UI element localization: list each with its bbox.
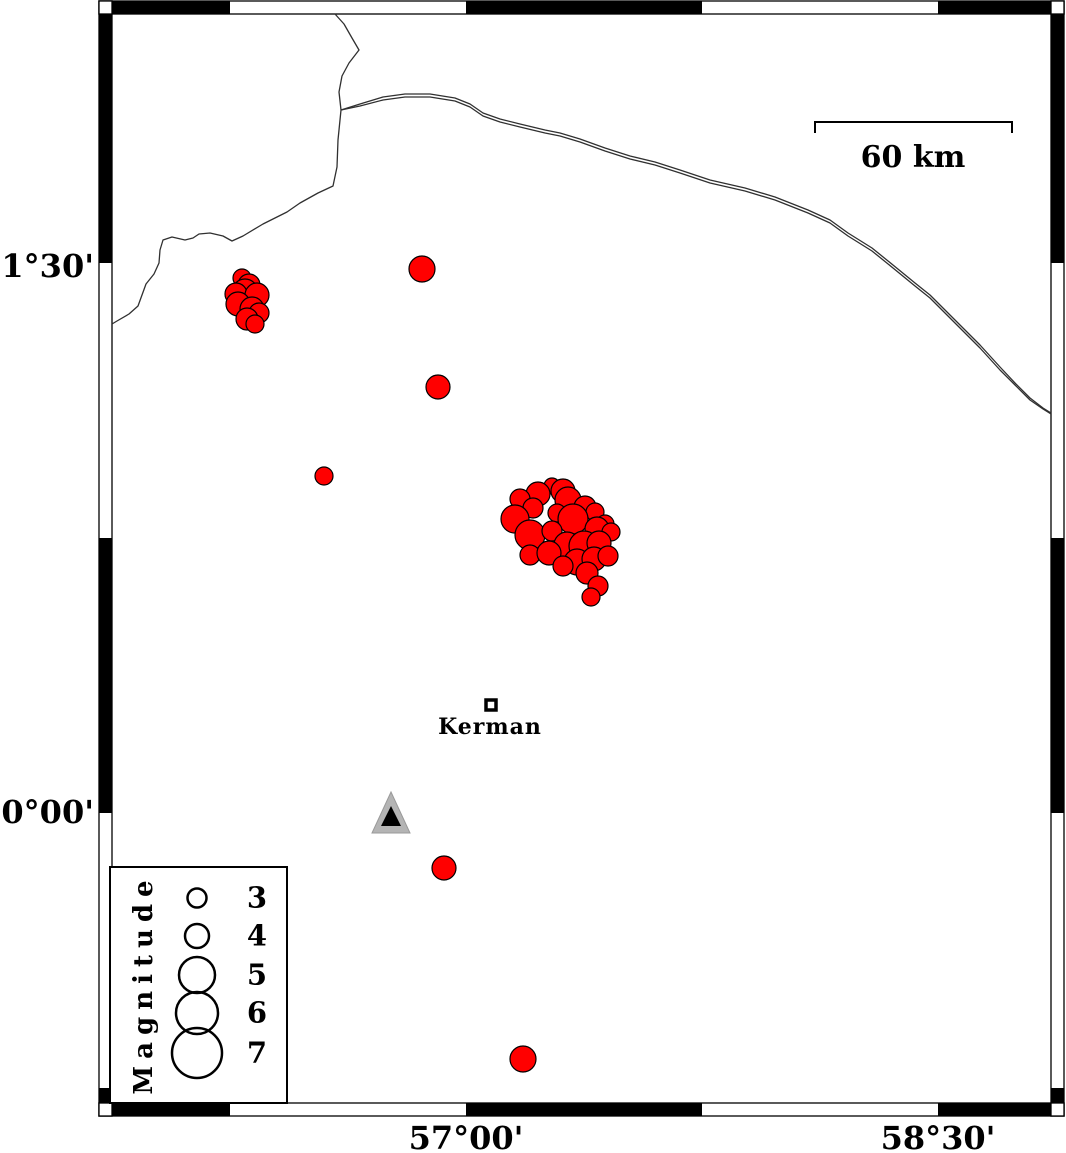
legend-value-7: 7 — [247, 1035, 267, 1069]
legend-value-4: 4 — [247, 918, 267, 952]
legend-title: Magnitude — [129, 873, 159, 1094]
city-marker — [486, 700, 496, 710]
frame-corner — [1051, 1103, 1064, 1116]
earthquake-marker — [426, 375, 450, 399]
frame-corner — [99, 1, 112, 14]
earthquake-marker — [553, 556, 573, 576]
earthquake-marker — [246, 315, 264, 333]
lon-label-57-00: 57°00' — [409, 1119, 524, 1153]
scale-bar — [815, 122, 1012, 133]
scale-bar-label: 60 km — [861, 140, 966, 175]
map-lines — [112, 14, 1051, 414]
seismicity-map-figure: 31°30' 30°00' 57°00' 58°30' 60 km Kerman… — [0, 0, 1066, 1153]
city-label: Kerman — [438, 714, 542, 740]
earthquake-marker — [510, 1046, 536, 1072]
frame-corner — [99, 1103, 112, 1116]
lon-label-58-30: 58°30' — [881, 1119, 996, 1153]
earthquake-marker — [432, 856, 456, 880]
earthquake-marker — [409, 256, 435, 282]
earthquake-marker — [558, 504, 588, 534]
earthquake-marker — [598, 546, 618, 566]
lat-label-31-30: 31°30' — [0, 247, 94, 285]
lat-label-30-00: 30°00' — [0, 793, 94, 831]
station-marker — [372, 792, 410, 833]
frame-corner — [1051, 1, 1064, 14]
earthquake-marker — [315, 467, 333, 485]
earthquake-marker — [582, 588, 600, 606]
legend-value-5: 5 — [247, 957, 267, 991]
legend-value-6: 6 — [247, 995, 267, 1029]
legend-value-3: 3 — [247, 880, 267, 914]
